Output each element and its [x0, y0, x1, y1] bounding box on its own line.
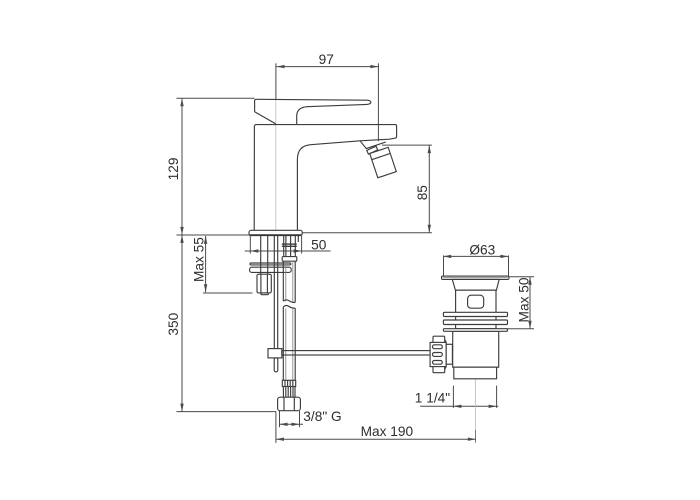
svg-text:Max 50: Max 50: [517, 277, 532, 322]
svg-text:Ø63: Ø63: [469, 243, 495, 258]
svg-text:97: 97: [319, 52, 334, 67]
svg-text:1 1/4": 1 1/4": [415, 391, 450, 406]
svg-text:350: 350: [166, 312, 181, 335]
svg-text:Max 190: Max 190: [361, 424, 414, 439]
svg-text:Max 55: Max 55: [191, 237, 206, 282]
svg-text:129: 129: [166, 157, 181, 180]
svg-text:50: 50: [311, 237, 327, 252]
svg-text:3/8" G: 3/8" G: [303, 409, 341, 424]
svg-text:85: 85: [415, 185, 430, 201]
